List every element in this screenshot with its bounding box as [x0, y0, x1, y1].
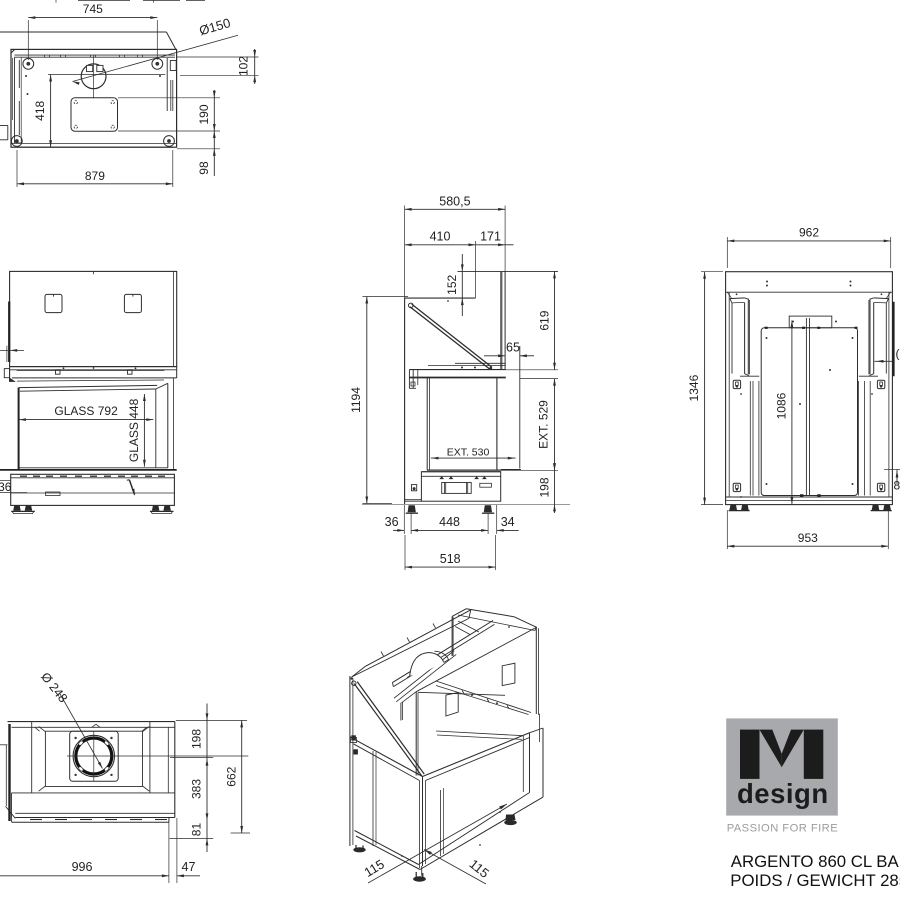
- svg-text:1346: 1346: [687, 374, 701, 401]
- svg-text:design: design: [737, 778, 829, 809]
- svg-text:448: 448: [439, 515, 460, 529]
- svg-text:ARGENTO 860 CL BA: ARGENTO 860 CL BA: [731, 852, 900, 871]
- svg-text:GLASS 792: GLASS 792: [54, 404, 118, 418]
- svg-text:198: 198: [190, 729, 204, 749]
- svg-text:36: 36: [385, 515, 399, 529]
- svg-text:171: 171: [480, 230, 501, 244]
- svg-text:580,5: 580,5: [439, 194, 470, 208]
- svg-text:1086: 1086: [774, 392, 788, 419]
- svg-text:619: 619: [537, 310, 551, 330]
- svg-text:418: 418: [33, 100, 47, 120]
- svg-text:745: 745: [83, 2, 103, 16]
- svg-text:383: 383: [190, 779, 204, 799]
- svg-text:996: 996: [72, 860, 93, 874]
- svg-text:(6: (6: [896, 347, 900, 361]
- svg-text:198: 198: [537, 477, 551, 497]
- svg-text:98: 98: [197, 161, 211, 175]
- svg-text:152: 152: [445, 274, 459, 294]
- svg-text:1194: 1194: [349, 387, 363, 413]
- svg-text:953: 953: [798, 531, 818, 545]
- svg-text:962: 962: [799, 226, 819, 240]
- svg-text:518: 518: [440, 552, 461, 566]
- svg-text:POIDS / GEWICHT 285: POIDS / GEWICHT 285: [730, 871, 900, 890]
- svg-text:662: 662: [224, 766, 238, 786]
- svg-text:EXT. 529: EXT. 529: [536, 400, 550, 449]
- svg-text:34: 34: [501, 515, 515, 529]
- svg-text:GLASS 448: GLASS 448: [127, 398, 141, 462]
- svg-text:47: 47: [182, 860, 196, 874]
- svg-text:36: 36: [0, 480, 12, 494]
- svg-text:102: 102: [237, 56, 251, 76]
- svg-text:879: 879: [85, 169, 105, 183]
- svg-text:65: 65: [506, 341, 520, 355]
- svg-text:410: 410: [430, 230, 451, 244]
- svg-text:PASSION FOR FIRE: PASSION FOR FIRE: [727, 823, 838, 835]
- svg-text:EXT. 530: EXT. 530: [447, 447, 490, 459]
- svg-text:81: 81: [190, 823, 204, 837]
- svg-text:8: 8: [894, 479, 900, 493]
- svg-text:190: 190: [197, 104, 211, 124]
